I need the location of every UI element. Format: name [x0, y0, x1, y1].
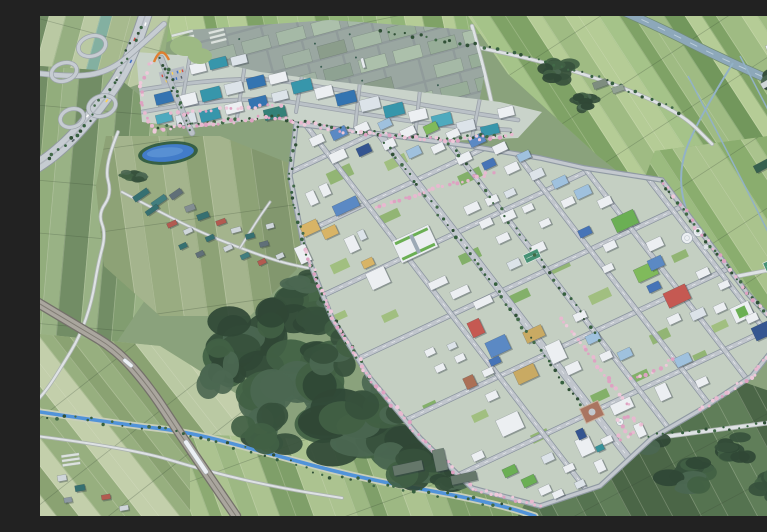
aerial-rendering: H — [40, 16, 767, 516]
site-plan-svg: H — [40, 16, 767, 516]
atmosphere — [40, 16, 767, 516]
